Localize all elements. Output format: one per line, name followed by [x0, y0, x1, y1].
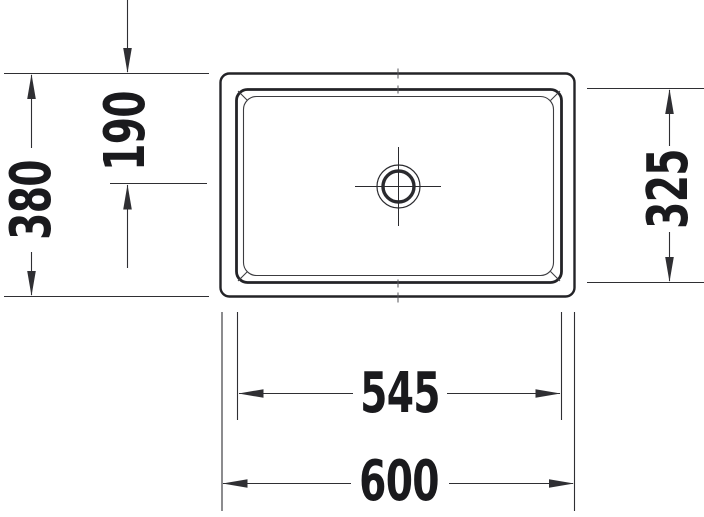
corner-tick-top-right: [551, 91, 561, 101]
arrowhead-left: [223, 479, 248, 488]
dim-label-drain-center-offset: 190: [98, 91, 154, 171]
sink-outer-edge: [221, 74, 575, 297]
arrowhead-right: [549, 479, 574, 488]
technical-drawing-canvas: 380 190 325 545 600: [0, 0, 704, 517]
drain-symbol: [355, 147, 441, 226]
corner-tick-bottom-right: [551, 272, 561, 282]
arrowhead-up: [27, 74, 36, 99]
arrowhead-down: [123, 48, 132, 73]
arrowhead-up: [665, 89, 674, 114]
arrowhead-down: [665, 257, 674, 282]
dim-label-basin-width: 545: [360, 366, 440, 422]
arrowhead-left: [239, 389, 264, 398]
sink-body: [221, 69, 575, 303]
dim-label-overall-depth: 380: [4, 160, 60, 240]
drawing-svg: [0, 0, 704, 517]
dim-label-basin-depth: 325: [641, 149, 697, 229]
arrowhead-right: [536, 389, 561, 398]
corner-tick-top-left: [238, 91, 248, 101]
dim-label-overall-width: 600: [359, 454, 439, 510]
arrowhead-down: [27, 271, 36, 296]
corner-tick-bottom-left: [238, 272, 248, 282]
